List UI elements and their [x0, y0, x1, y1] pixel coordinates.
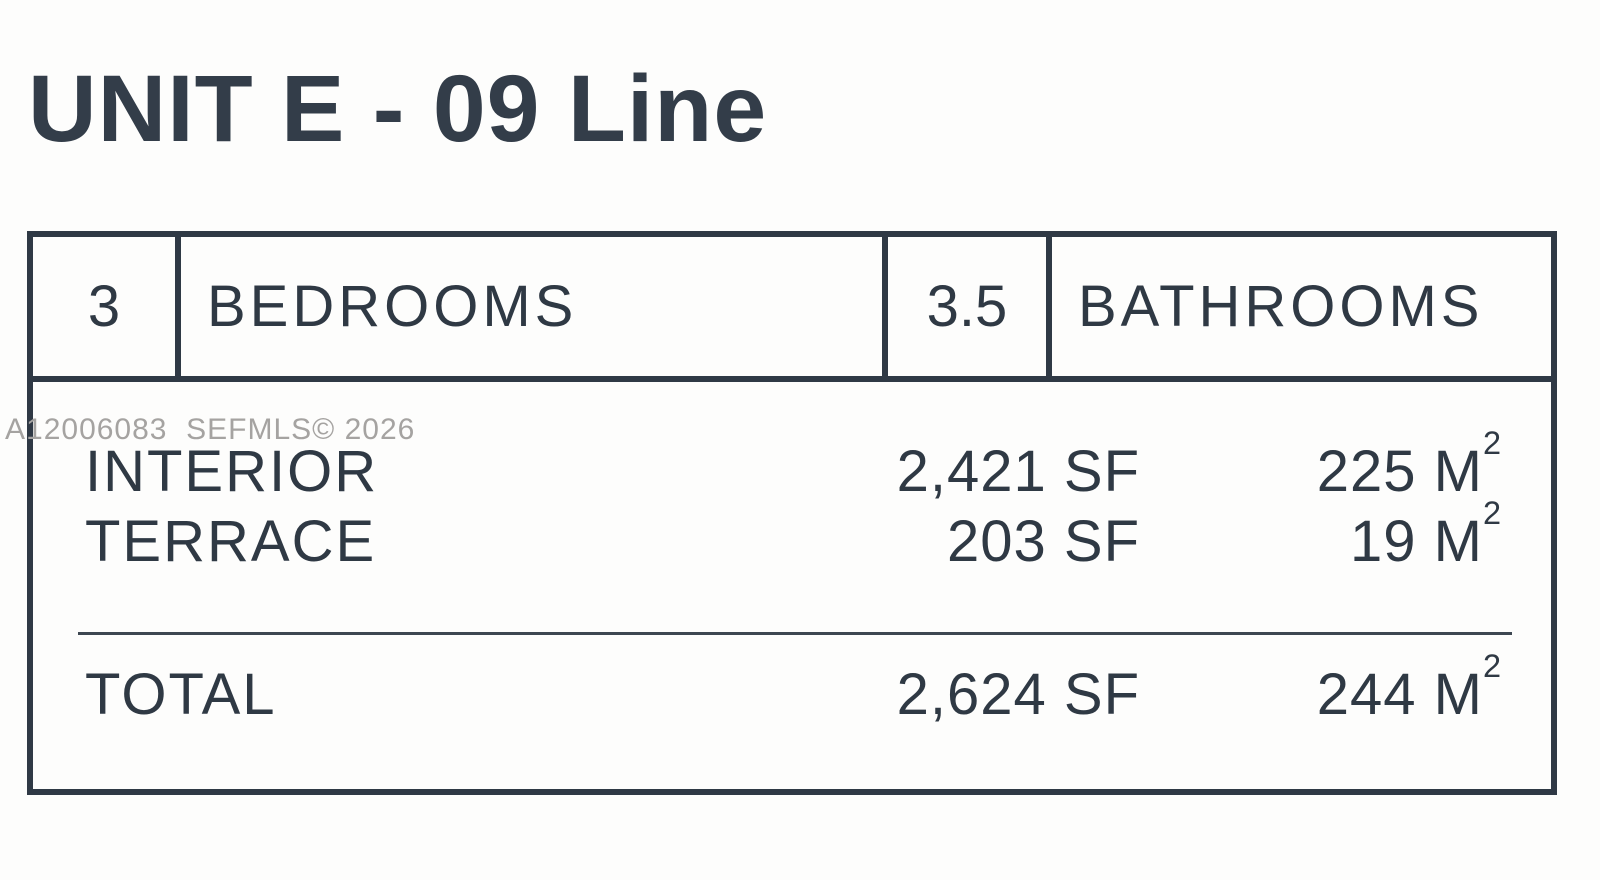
- area-row-total: TOTAL 2,624 SF 244 M2: [85, 659, 1502, 729]
- interior-sf-value: 2,421 SF: [830, 438, 1140, 505]
- total-m2-text: 244 M: [1317, 662, 1483, 727]
- bedrooms-label: BEDROOMS: [181, 237, 888, 376]
- bathrooms-label: BATHROOMS: [1052, 237, 1551, 376]
- total-m2-value: 244 M2: [1140, 661, 1502, 728]
- total-divider-line: [78, 632, 1512, 635]
- unit-spec-table: 3 BEDROOMS 3.5 BATHROOMS INTERIOR 2,421 …: [27, 231, 1557, 795]
- interior-m2-superscript: 2: [1483, 425, 1502, 461]
- terrace-m2-value: 19 M2: [1140, 508, 1502, 575]
- total-sf-value: 2,624 SF: [830, 661, 1140, 728]
- mls-watermark: A12006083 SEFMLS© 2026: [5, 413, 415, 447]
- terrace-m2-superscript: 2: [1483, 495, 1502, 531]
- total-label: TOTAL: [85, 661, 830, 728]
- terrace-m2-text: 19 M: [1350, 509, 1483, 574]
- bedrooms-count: 3: [33, 237, 181, 376]
- area-row-terrace: TERRACE 203 SF 19 M2: [85, 506, 1502, 576]
- interior-m2-value: 225 M2: [1140, 438, 1502, 505]
- bathrooms-count: 3.5: [888, 237, 1052, 376]
- terrace-sf-value: 203 SF: [830, 508, 1140, 575]
- bed-bath-header-row: 3 BEDROOMS 3.5 BATHROOMS: [33, 237, 1551, 382]
- total-m2-superscript: 2: [1483, 648, 1502, 684]
- page-title: UNIT E - 09 Line: [28, 60, 767, 160]
- interior-m2-text: 225 M: [1317, 439, 1483, 504]
- interior-label: INTERIOR: [85, 438, 830, 505]
- terrace-label: TERRACE: [85, 508, 830, 575]
- unit-spec-sheet: UNIT E - 09 Line 3 BEDROOMS 3.5 BATHROOM…: [0, 0, 1600, 880]
